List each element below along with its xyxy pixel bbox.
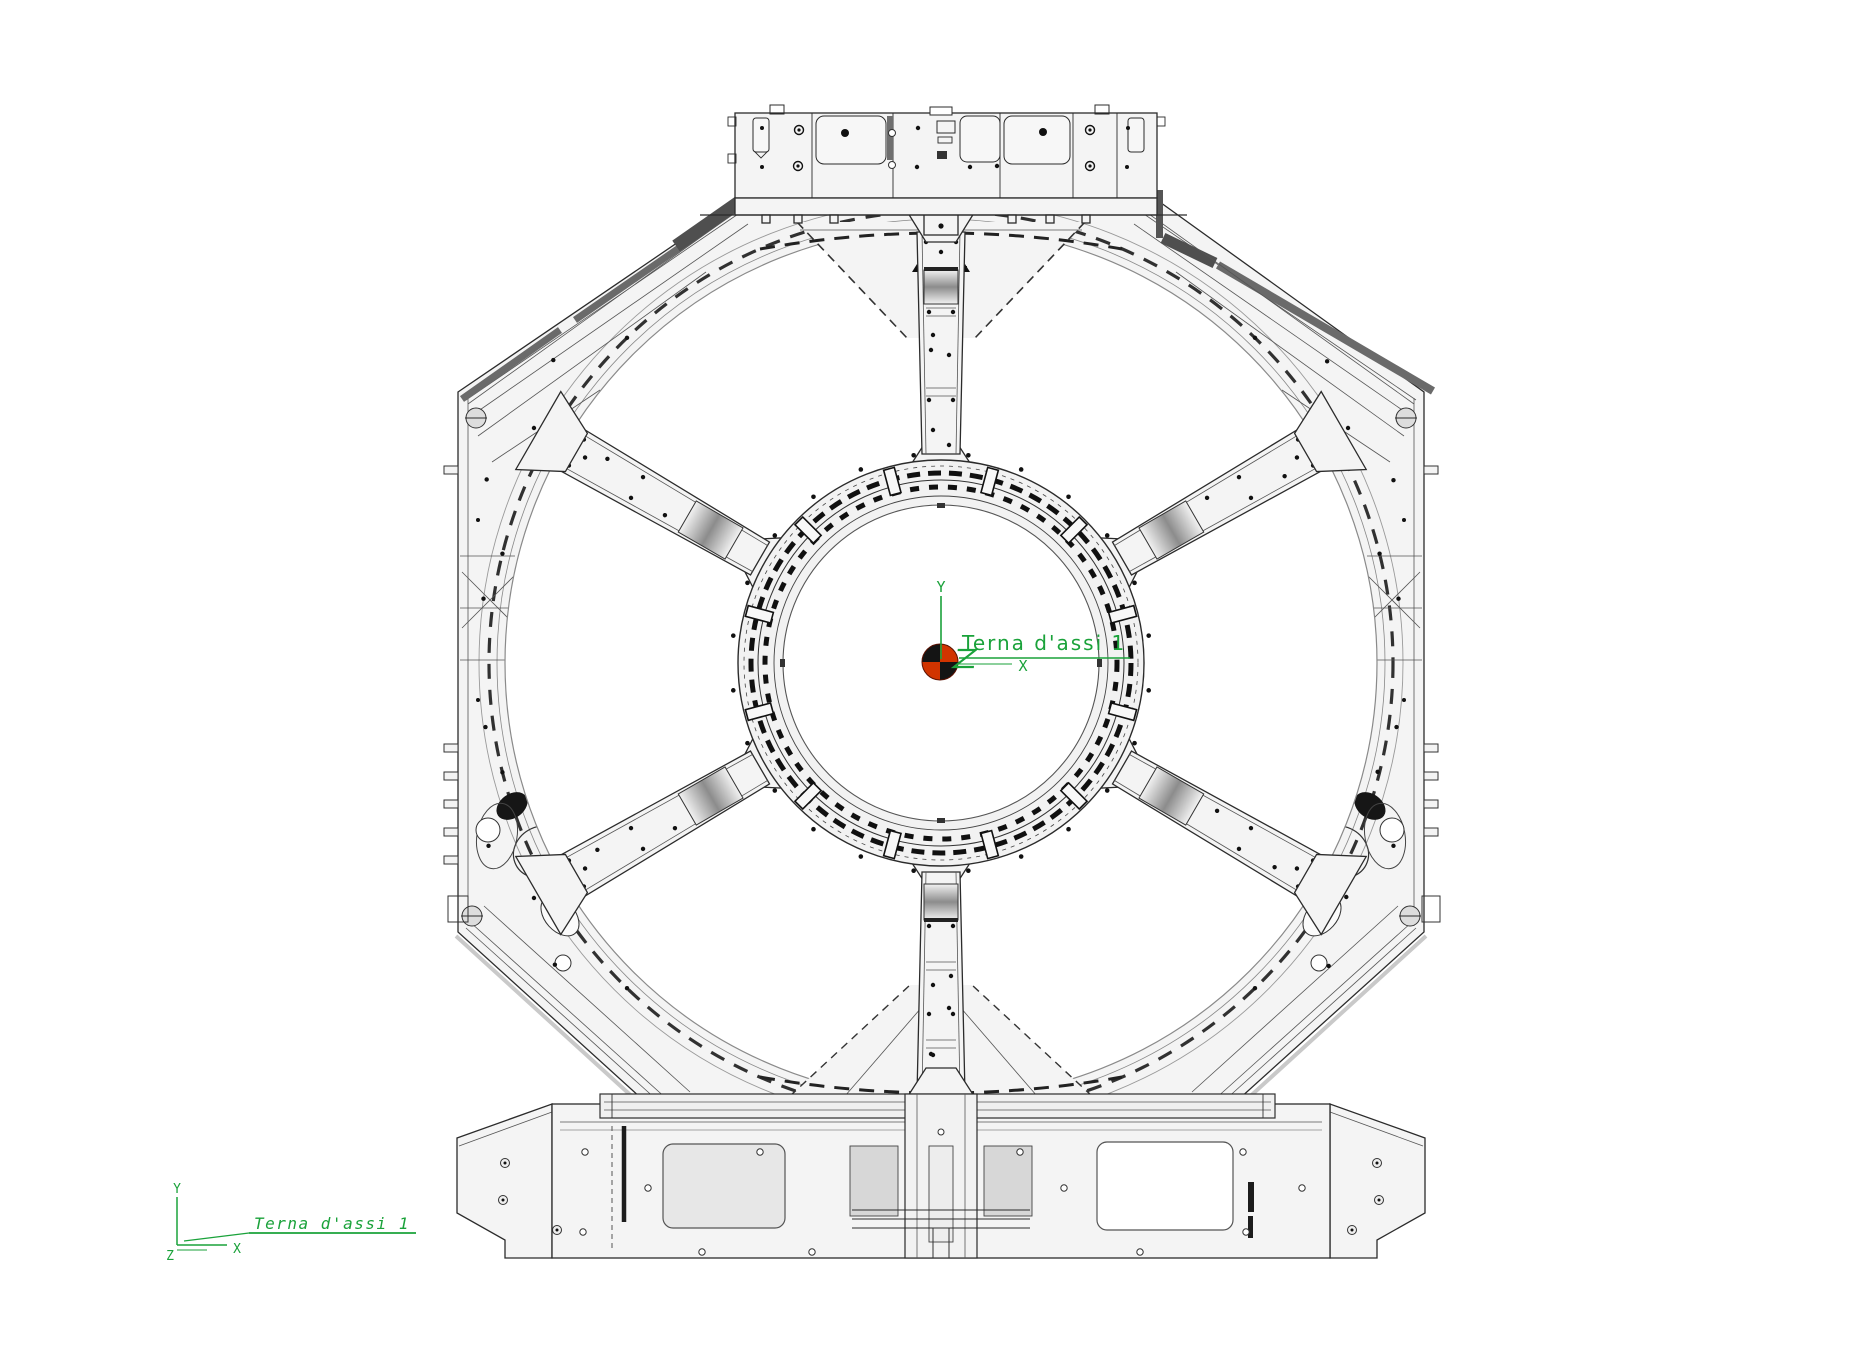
- center-of-mass-marker: [922, 644, 958, 680]
- origin-axis-triad: Y X Z Terna d'assi 1: [166, 1182, 416, 1264]
- center-triad-label: Terna d'assi 1: [961, 631, 1126, 655]
- origin-axis-x-label: X: [233, 1242, 241, 1257]
- base-right-cutout: [1097, 1142, 1233, 1230]
- base-left-cutout: [663, 1144, 785, 1228]
- origin-axis-z-label: Z: [166, 1249, 174, 1264]
- base-pedestal: [457, 1094, 1425, 1258]
- center-axis-y-label: Y: [936, 578, 945, 596]
- origin-axis-y-label: Y: [173, 1182, 181, 1197]
- center-axis-x-label: X: [1018, 657, 1027, 675]
- origin-triad-label: Terna d'assi 1: [254, 1214, 410, 1233]
- top-superstructure: [700, 105, 1187, 223]
- cad-viewport: Y X Terna d'assi 1 Y X Z Terna d'assi 1: [0, 0, 1849, 1350]
- cad-drawing-canvas: Y X Terna d'assi 1 Y X Z Terna d'assi 1: [0, 0, 1849, 1350]
